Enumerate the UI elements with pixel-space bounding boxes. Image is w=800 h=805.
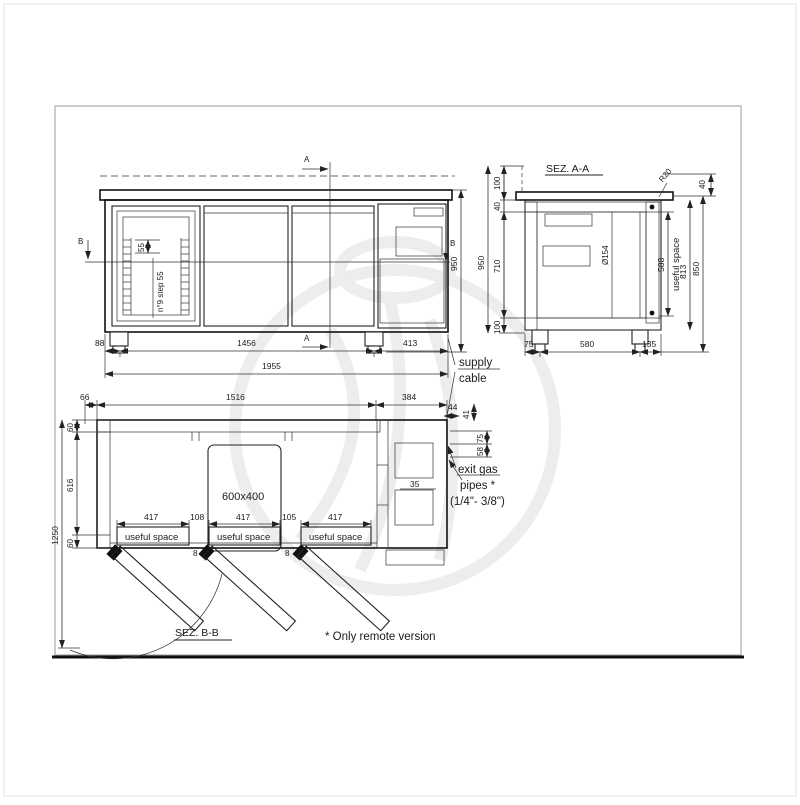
dim-35: 35 [410,479,420,489]
dim-pipe-75: 75 [476,434,485,443]
dim-44: 44 [448,402,458,412]
dim-1516: 1516 [226,392,245,402]
drawer-size-label: 600x400 [222,491,264,503]
supply-cable-line2: cable [459,373,487,385]
dim-813: 813 [678,265,688,279]
dim-417-3: 417 [328,512,342,522]
refrigerated-counter-drawing: 55 n°9 step 55 B B [0,0,800,800]
exit-gas-line2: pipes * [460,480,496,492]
section-b-label-right: B [450,239,455,248]
dim-850: 850 [691,262,701,276]
dim-135: 135 [642,339,656,349]
dim-1456: 1456 [237,338,256,348]
dim-40-left: 40 [493,202,502,211]
dim-pipe-58: 58 [476,447,485,456]
dim-100-bottom: 100 [493,320,502,334]
dim-60-top: 60 [66,423,75,432]
useful-space-label-section: useful space [671,238,682,291]
dim-417-2: 417 [236,512,250,522]
section-a-label-bottom: A [304,334,310,343]
dim-108: 108 [190,512,204,522]
front-height-value: 950 [449,257,459,271]
supply-cable-line1: supply [459,357,492,369]
dim-384: 384 [402,392,416,402]
plan-title: SEZ. B-B [175,627,219,639]
dim-588: 588 [656,258,666,272]
section-a-label-top: A [304,155,310,164]
dim-616: 616 [66,478,75,492]
exit-gas-line1: exit gas [458,464,498,476]
dim-88: 88 [95,338,105,348]
section-aa-title: SEZ. A-A [546,163,589,175]
useful-space-1: useful space [125,532,178,543]
dim-41: 41 [462,410,471,419]
shelf-pitch-dim: 55 [137,243,146,252]
dim-413: 413 [403,338,417,348]
technical-drawing-page: 55 n°9 step 55 B B [0,0,800,800]
dim-40-right: 40 [698,180,707,189]
dim-710: 710 [493,259,502,273]
dim-1250: 1250 [50,526,60,545]
useful-space-2: useful space [217,532,270,543]
door-handle-bottom [650,311,655,316]
dim-60-bottom: 60 [66,539,75,548]
dim-105: 105 [282,512,296,522]
remote-version-footnote: * Only remote version [325,631,436,643]
section-b-label-left: B [78,237,83,246]
dim-580: 580 [580,339,594,349]
shelf-count-note: n°9 step 55 [156,271,165,312]
dim-75: 75 [524,339,534,349]
dim-8-b: 8 [285,549,290,558]
useful-space-3: useful space [309,532,362,543]
dim-1955: 1955 [262,361,281,371]
dim-417-1: 417 [144,512,158,522]
door-handle-top [650,205,655,210]
exit-gas-line3: (1/4"- 3/8") [450,496,505,508]
dim-100-top: 100 [493,176,502,190]
dim-950-section: 950 [476,256,486,270]
pipe-diameter: Ø154 [601,245,610,265]
dim-66: 66 [80,392,90,402]
dim-8-a: 8 [193,549,198,558]
